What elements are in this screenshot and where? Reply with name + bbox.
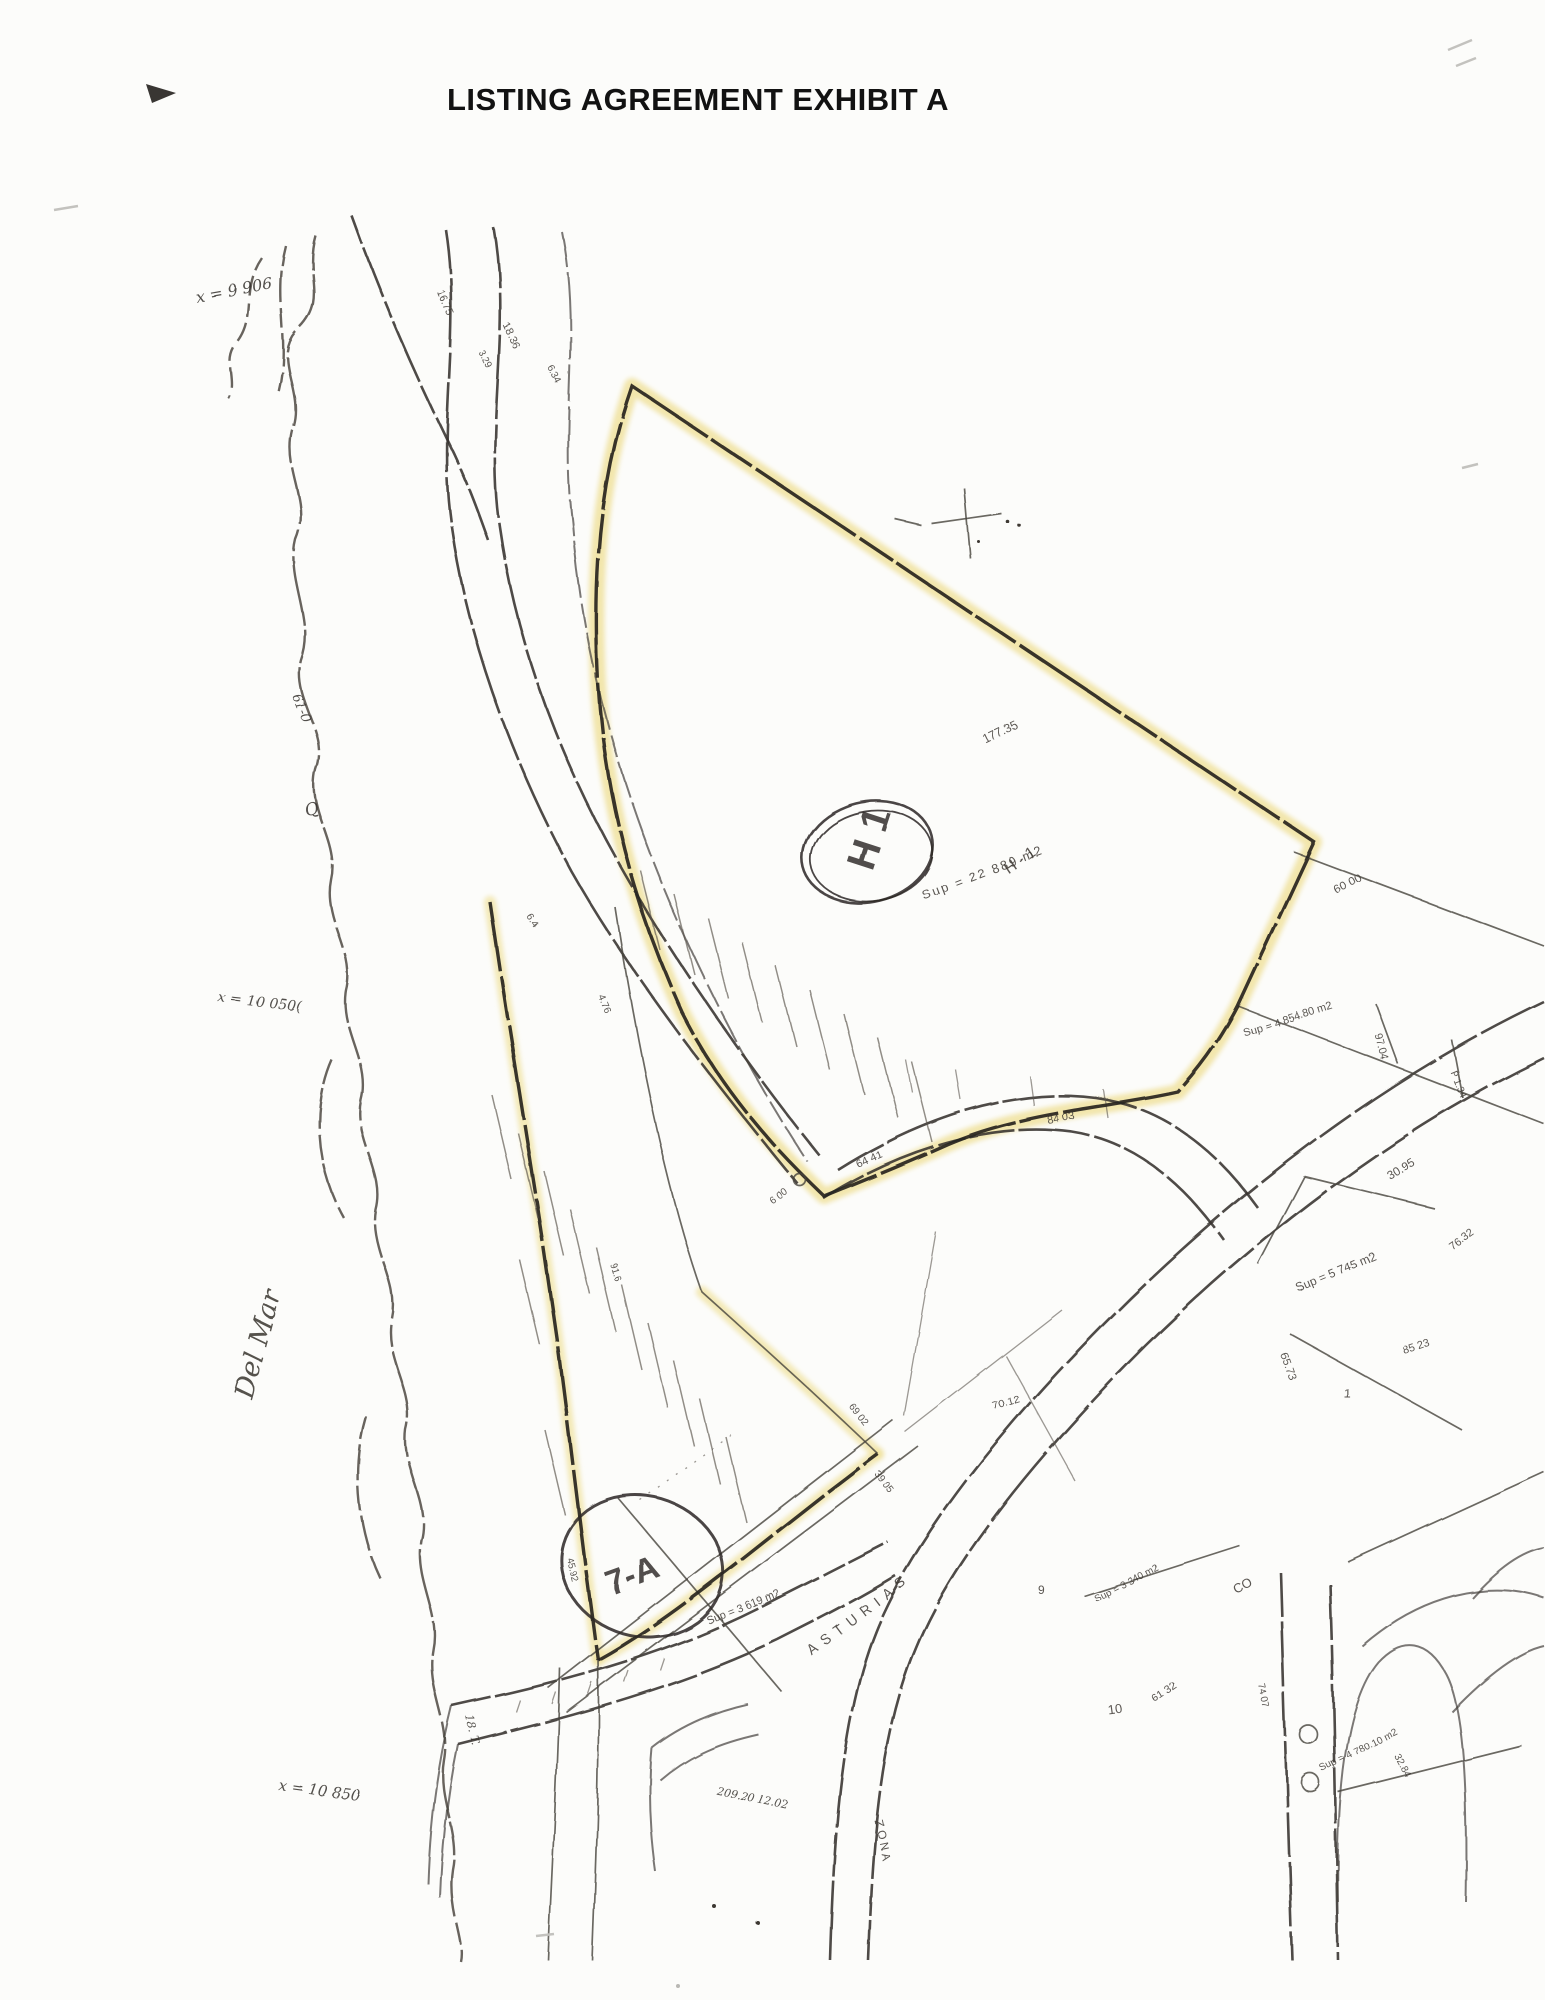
survey-map: H 1 7-A x = 9 90616.7518.363.296.3461-0Q… [0, 0, 1545, 2000]
map-label: Sup = 5 745 m2 [1294, 1249, 1378, 1295]
map-label: 61 32 [1149, 1679, 1179, 1704]
culdesac-circle [1299, 1725, 1317, 1743]
map-label: ASTURIAS [804, 1570, 914, 1659]
map-label: x = 9 906 [193, 274, 274, 306]
map-label: 91.6 [607, 1262, 623, 1284]
map-label: 10 [1106, 1700, 1122, 1717]
map-label: Sup = 3 340 m2 [1092, 1562, 1161, 1604]
ink-drawing: H 1 7-A x = 9 90616.7518.363.296.3461-0Q… [193, 216, 1544, 1962]
map-label: x = 10 050( [218, 990, 303, 1015]
parcel-7a-boundary [490, 902, 878, 1960]
coordinate-cross-mark [896, 488, 1022, 558]
map-label: Del Mar [229, 1284, 289, 1403]
map-label: 177.35 [981, 718, 1020, 747]
map-label: Sup = 22 889 m2 [920, 842, 1046, 902]
map-label: 74 07 [1255, 1682, 1271, 1709]
map-label: 3.29 [475, 348, 494, 371]
culdesac-circle [1301, 1773, 1319, 1791]
map-label: 30.95 [1385, 1155, 1418, 1182]
map-label: 61-0 [288, 692, 313, 725]
map-label: Sup = 4 854.80 m2 [1241, 1000, 1334, 1039]
map-label: 76.32 [1447, 1227, 1476, 1253]
map-label: 16.75 [434, 288, 456, 318]
highlighter-marks [490, 386, 1314, 1660]
hatching [492, 870, 932, 1522]
small-marks [712, 1904, 759, 1924]
map-label: Sup = 4 780.10 m2 [1318, 1726, 1399, 1774]
map-label: 4.76 [595, 993, 613, 1016]
map-label: 18.36 [500, 321, 522, 351]
map-label: 39 05 [872, 1469, 896, 1496]
h1-stamp-label: H 1 [839, 802, 900, 875]
roads [352, 216, 1544, 1960]
map-label: 209.20 12.02 [714, 1784, 790, 1812]
map-label: 65.73 [1277, 1351, 1297, 1381]
map-label: Q [302, 798, 321, 821]
document-page: LISTING AGREEMENT EXHIBIT A [0, 0, 1545, 2000]
map-label: 85 23 [1401, 1337, 1431, 1357]
parcel-h1-boundary [596, 386, 1314, 1196]
map-label: P 1.34 [1447, 1069, 1468, 1100]
map-label: 6 00 [767, 1186, 790, 1206]
map-label: 6.34 [545, 364, 564, 387]
river [228, 236, 462, 1962]
map-label: 45.92 [563, 1556, 580, 1583]
map-label: 60 00 [1331, 870, 1364, 896]
map-label: 1 [1344, 1386, 1351, 1401]
map-label: 70.12 [991, 1393, 1021, 1413]
h1-stamp: H 1 [792, 788, 944, 917]
map-label: Sup = 3 619 m2 [705, 1588, 782, 1627]
map-label: CO [1230, 1574, 1254, 1596]
map-label: x = 10 850 [277, 1776, 362, 1805]
pen-mark [146, 84, 176, 103]
highlight-parcel-h1 [596, 386, 1314, 1196]
map-label: 32.84 [1391, 1752, 1413, 1780]
parcel-7a-stamp-label: 7-A [601, 1549, 665, 1603]
map-label: 9 [1038, 1583, 1045, 1597]
map-label: 6.4 [523, 912, 540, 930]
